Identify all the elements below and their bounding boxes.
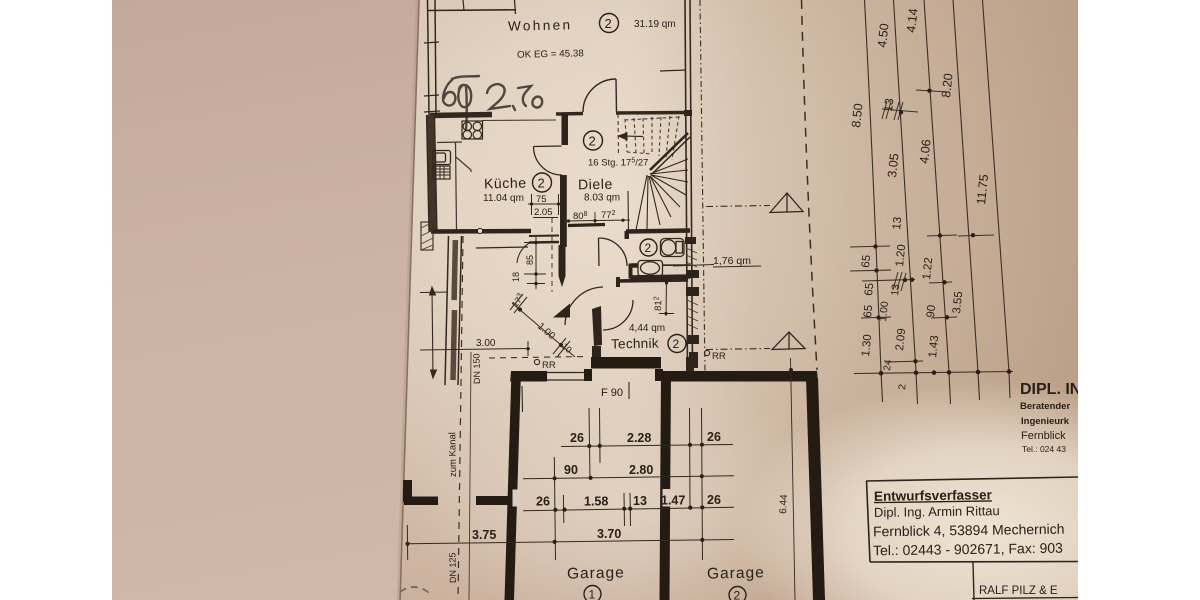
svg-text:Tel.: 02443 - 902671, Fax: 903: Tel.: 02443 - 902671, Fax: 903 bbox=[873, 540, 1063, 559]
svg-text:1.00: 1.00 bbox=[877, 301, 891, 323]
svg-text:24: 24 bbox=[882, 359, 894, 372]
svg-text:DIPL. IN: DIPL. IN bbox=[1020, 381, 1081, 398]
svg-text:Küche: Küche bbox=[484, 175, 527, 192]
svg-text:26: 26 bbox=[570, 431, 584, 445]
svg-text:2: 2 bbox=[605, 16, 612, 31]
svg-text:1.22: 1.22 bbox=[921, 257, 935, 281]
svg-text:2: 2 bbox=[538, 176, 545, 191]
svg-text:85: 85 bbox=[525, 255, 535, 265]
svg-text:18: 18 bbox=[511, 272, 521, 282]
svg-text:1.43: 1.43 bbox=[927, 335, 941, 359]
svg-text:65: 65 bbox=[860, 254, 873, 268]
svg-text:1,76 qm: 1,76 qm bbox=[713, 255, 751, 267]
svg-text:Diele: Diele bbox=[578, 176, 613, 193]
svg-text:13: 13 bbox=[891, 216, 904, 230]
svg-text:1: 1 bbox=[589, 588, 596, 600]
svg-text:2.09: 2.09 bbox=[894, 328, 908, 352]
svg-text:3.75: 3.75 bbox=[472, 528, 496, 542]
svg-text:26: 26 bbox=[707, 430, 721, 444]
svg-text:1.20: 1.20 bbox=[894, 244, 908, 268]
svg-text:3.70: 3.70 bbox=[597, 527, 621, 541]
svg-text:2: 2 bbox=[734, 589, 741, 600]
svg-text:1.58: 1.58 bbox=[584, 495, 608, 509]
svg-text:Dipl. Ing. Armin Rittau: Dipl. Ing. Armin Rittau bbox=[874, 503, 1000, 520]
svg-text:8.50: 8.50 bbox=[849, 103, 865, 129]
svg-text:65: 65 bbox=[862, 304, 875, 318]
svg-text:RR: RR bbox=[712, 351, 726, 362]
svg-text:3.55: 3.55 bbox=[951, 291, 965, 315]
svg-text:13: 13 bbox=[889, 283, 902, 296]
svg-text:6.44: 6.44 bbox=[778, 494, 790, 514]
svg-text:DN 125: DN 125 bbox=[447, 552, 458, 583]
svg-text:2: 2 bbox=[673, 337, 680, 351]
svg-text:2.80: 2.80 bbox=[629, 463, 653, 477]
svg-text:11.04 qm: 11.04 qm bbox=[483, 193, 524, 204]
svg-text:75: 75 bbox=[536, 194, 547, 205]
svg-text:3.00: 3.00 bbox=[476, 338, 496, 349]
svg-text:1.30: 1.30 bbox=[860, 334, 874, 358]
svg-text:4.14: 4.14 bbox=[904, 8, 920, 34]
svg-text:Ingenieurk: Ingenieurk bbox=[1021, 416, 1070, 427]
svg-text:Tel.: 024 43: Tel.: 024 43 bbox=[1022, 444, 1066, 454]
svg-text:RR: RR bbox=[542, 360, 556, 371]
svg-text:8.03 qm: 8.03 qm bbox=[584, 193, 620, 204]
svg-text:Entwurfsverfasser: Entwurfsverfasser bbox=[874, 487, 993, 504]
svg-text:90: 90 bbox=[925, 304, 938, 318]
svg-text:4,44 qm: 4,44 qm bbox=[629, 323, 665, 334]
svg-text:2: 2 bbox=[645, 241, 652, 255]
svg-text:65: 65 bbox=[863, 282, 876, 296]
svg-text:31.19 qm: 31.19 qm bbox=[634, 19, 676, 30]
svg-text:2.05: 2.05 bbox=[534, 207, 553, 218]
svg-text:Technik: Technik bbox=[611, 336, 659, 352]
svg-text:F 90: F 90 bbox=[601, 387, 623, 399]
svg-text:Fernblick 4, 53894 Mechernich: Fernblick 4, 53894 Mechernich bbox=[873, 521, 1065, 540]
svg-text:3.05: 3.05 bbox=[885, 153, 901, 179]
svg-text:Fernblick: Fernblick bbox=[1021, 430, 1066, 442]
svg-text:16 Stg. 175/27: 16 Stg. 175/27 bbox=[588, 158, 648, 169]
svg-text:zum Kanal: zum Kanal bbox=[447, 432, 459, 477]
svg-text:RALF PILZ & E: RALF PILZ & E bbox=[979, 585, 1058, 597]
svg-text:Beratender: Beratender bbox=[1020, 401, 1070, 412]
svg-text:26: 26 bbox=[536, 495, 550, 509]
svg-text:Garage: Garage bbox=[707, 564, 765, 582]
svg-text:26: 26 bbox=[707, 493, 721, 507]
svg-text:1.47: 1.47 bbox=[661, 494, 685, 508]
svg-text:OK EG = 45.38: OK EG = 45.38 bbox=[517, 48, 584, 60]
svg-text:4.50: 4.50 bbox=[875, 23, 891, 49]
svg-text:90: 90 bbox=[564, 463, 578, 477]
svg-text:8.20: 8.20 bbox=[939, 73, 955, 99]
svg-text:13: 13 bbox=[633, 494, 647, 508]
svg-text:2: 2 bbox=[589, 134, 596, 149]
svg-text:4.06: 4.06 bbox=[917, 139, 933, 165]
svg-text:2.28: 2.28 bbox=[627, 431, 651, 445]
svg-text:Garage: Garage bbox=[567, 564, 625, 582]
svg-text:Wohnen: Wohnen bbox=[508, 17, 573, 33]
svg-text:DN 150: DN 150 bbox=[471, 353, 482, 384]
